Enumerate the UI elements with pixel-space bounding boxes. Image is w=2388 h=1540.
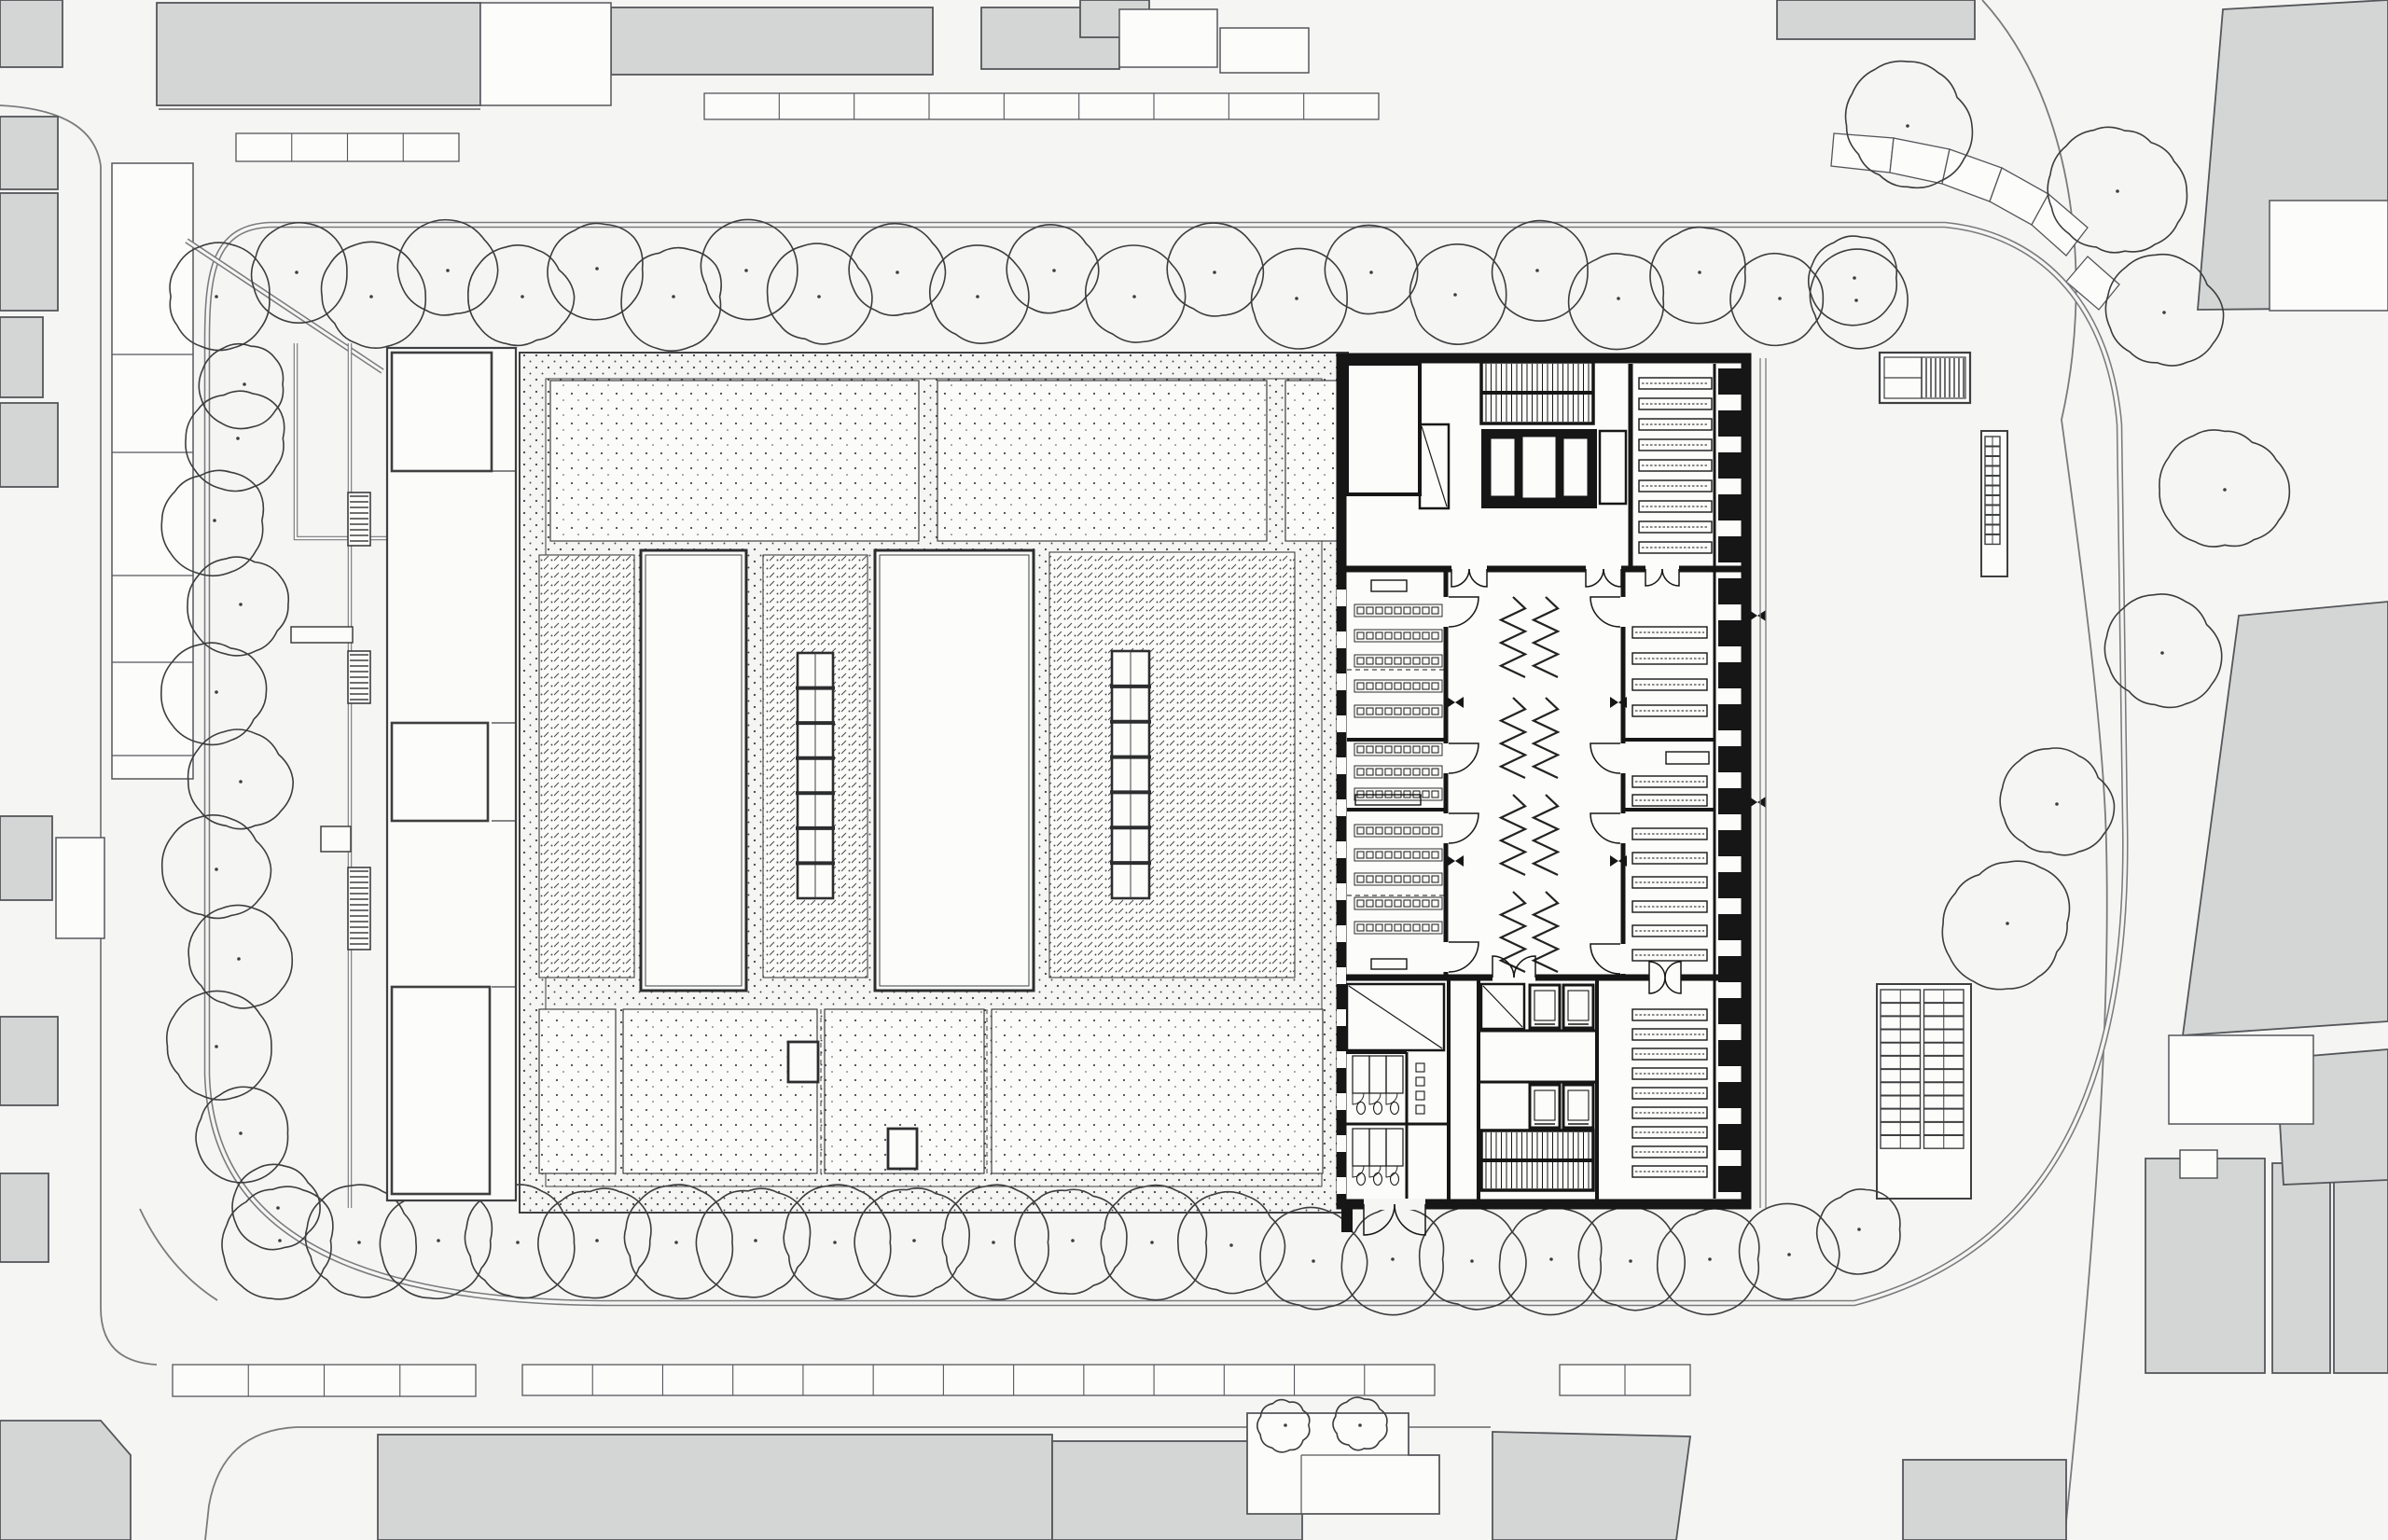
- tree-trunk: [1535, 269, 1539, 272]
- row-houses: [1119, 9, 1217, 67]
- tree-trunk: [2116, 189, 2119, 193]
- context-building: [0, 1017, 58, 1105]
- row-houses: [112, 163, 193, 779]
- core-cell: [1522, 437, 1556, 498]
- context-building: [0, 317, 43, 397]
- tree-trunk: [1213, 271, 1216, 274]
- context-building: [1492, 1432, 1690, 1540]
- facade-window-module: [1718, 1040, 1742, 1066]
- facade-window-gap: [1337, 715, 1346, 732]
- facade-window-module: [1718, 998, 1742, 1024]
- tree-trunk: [1052, 269, 1056, 272]
- parking-row: [522, 1365, 1435, 1395]
- sports-field: [875, 550, 1034, 991]
- facade-window-gap: [1337, 631, 1346, 648]
- facade-window-gap: [1337, 1177, 1346, 1194]
- tree-trunk: [672, 295, 675, 298]
- tree-trunk: [215, 867, 218, 871]
- tree-trunk: [215, 690, 218, 694]
- tree-trunk: [1857, 1228, 1861, 1231]
- tree-trunk: [1617, 297, 1620, 300]
- tree-trunk: [817, 295, 821, 298]
- context-building: [611, 7, 933, 75]
- tree-trunk: [239, 603, 243, 606]
- tree-trunk: [1778, 297, 1782, 300]
- tree-trunk: [833, 1241, 837, 1244]
- school-main-building: [1337, 354, 1767, 1236]
- planting-plot: [623, 1009, 817, 1173]
- context-building: [157, 3, 480, 105]
- row-houses: [480, 3, 611, 105]
- facade-window-gap: [1337, 757, 1346, 774]
- tree-trunk: [1853, 276, 1856, 280]
- tree-trunk: [239, 780, 243, 784]
- tree-trunk: [437, 1239, 440, 1242]
- lawn-plot: [539, 555, 634, 978]
- facade-window-module: [1718, 536, 1742, 562]
- context-building: [0, 1173, 49, 1262]
- facade-window-module: [1718, 788, 1742, 814]
- tree-trunk: [1549, 1257, 1553, 1261]
- row-houses: [2169, 1035, 2313, 1124]
- context-building: [1777, 0, 1975, 39]
- tree-trunk: [215, 1045, 218, 1048]
- facade-window-module: [1718, 872, 1742, 898]
- facade-window-gap: [1337, 590, 1346, 606]
- facade-window-module: [1718, 704, 1742, 730]
- tree-trunk: [1906, 124, 1909, 128]
- facade-window-module: [1718, 662, 1742, 688]
- facade-window-module: [1718, 410, 1742, 437]
- wing-room: [392, 353, 492, 471]
- tree-trunk: [1295, 297, 1298, 300]
- wing-room: [392, 723, 488, 821]
- tree-trunk: [295, 271, 298, 274]
- tree-trunk: [1071, 1239, 1075, 1242]
- core-cell: [1563, 438, 1588, 496]
- facade-window-gap: [1337, 1135, 1346, 1152]
- row-houses: [2180, 1150, 2217, 1178]
- tree-trunk: [674, 1241, 678, 1244]
- tree-trunk: [976, 295, 979, 298]
- tree-trunk: [1854, 298, 1858, 302]
- tree-trunk: [1284, 1423, 1287, 1427]
- tree-trunk: [237, 957, 241, 961]
- tree-trunk: [744, 269, 748, 272]
- tree-trunk: [2160, 651, 2164, 655]
- tree-trunk: [276, 1206, 280, 1210]
- facade-window-module: [1718, 1166, 1742, 1192]
- tree-trunk: [1150, 1241, 1154, 1244]
- play-element: [888, 1129, 917, 1169]
- tree-trunk: [1787, 1253, 1791, 1256]
- planting-plot: [539, 1009, 616, 1173]
- tree-trunk: [895, 271, 899, 274]
- parking-stall: [1831, 133, 1894, 173]
- bench: [348, 867, 370, 950]
- context-building: [0, 117, 58, 189]
- tree-trunk: [595, 1239, 599, 1242]
- facade-window-module: [1718, 1124, 1742, 1150]
- planting-plot: [992, 1009, 1323, 1173]
- tree-trunk: [1229, 1243, 1233, 1247]
- facade-window-module: [1718, 620, 1742, 646]
- facade-window-gap: [1337, 925, 1346, 942]
- facade-window-gap: [1337, 1009, 1346, 1026]
- play-element: [788, 1042, 818, 1082]
- school-left-wing: [387, 348, 516, 1200]
- site-plan-drawing: [0, 0, 2388, 1540]
- tree-trunk: [2223, 488, 2227, 492]
- tree-trunk: [278, 1239, 282, 1242]
- tree-trunk: [357, 1241, 361, 1244]
- tree-trunk: [1470, 1259, 1474, 1263]
- planting-plot: [1285, 381, 1343, 541]
- tree-trunk: [243, 382, 246, 386]
- tree-trunk: [516, 1241, 520, 1244]
- tree-trunk: [1369, 271, 1373, 274]
- facade-window-gap: [1337, 799, 1346, 816]
- tree-trunk: [992, 1241, 995, 1244]
- plan-canvas: [0, 0, 2388, 1540]
- tree-trunk: [1708, 1257, 1712, 1261]
- tree-trunk: [2006, 922, 2009, 925]
- row-houses: [2270, 201, 2388, 311]
- tree-trunk: [2055, 802, 2059, 806]
- facade-window-module: [1718, 494, 1742, 520]
- context-building: [378, 1435, 1052, 1540]
- tree-trunk: [1453, 293, 1457, 297]
- wall-stub: [1341, 1204, 1353, 1232]
- facade-window-module: [1718, 746, 1742, 772]
- row-houses: [1220, 28, 1309, 73]
- tree-trunk: [1629, 1259, 1632, 1263]
- facade-window-module: [1718, 830, 1742, 856]
- tree-trunk: [1698, 271, 1701, 274]
- wing-room: [392, 987, 490, 1194]
- facade-window-gap: [1337, 1093, 1346, 1110]
- lawn-plot: [1049, 552, 1295, 978]
- context-building: [0, 1421, 131, 1540]
- parking-row: [704, 93, 1379, 119]
- facade-window-gap: [1337, 841, 1346, 858]
- site-element: [291, 627, 353, 643]
- school-courtyard: [520, 353, 1348, 1213]
- tree-trunk: [236, 437, 240, 440]
- tree-trunk: [521, 295, 524, 298]
- row-houses: [56, 838, 104, 938]
- tree-trunk: [754, 1239, 757, 1242]
- tree-trunk: [1132, 295, 1136, 298]
- planting-plot: [550, 381, 919, 541]
- context-building: [0, 0, 62, 67]
- context-building: [1903, 1460, 2066, 1540]
- facade-window-gap: [1337, 673, 1346, 690]
- site-element: [321, 826, 351, 852]
- context-building: [2272, 1163, 2330, 1373]
- tree-trunk: [1358, 1423, 1362, 1427]
- sports-field: [641, 550, 746, 991]
- facade-window-module: [1718, 368, 1742, 395]
- tree-trunk: [912, 1239, 916, 1242]
- tree-trunk: [446, 269, 450, 272]
- facade-window-gap: [1337, 1051, 1346, 1068]
- tree-trunk: [213, 519, 216, 522]
- tree-trunk: [215, 295, 218, 298]
- facade-window-module: [1718, 452, 1742, 479]
- context-building: [2145, 1158, 2265, 1373]
- facade-window-module: [1718, 1082, 1742, 1108]
- planting-plot: [937, 381, 1267, 541]
- facade-window-module: [1718, 956, 1742, 982]
- tree-trunk: [239, 1131, 243, 1135]
- tree-trunk: [369, 295, 373, 298]
- context-building: [0, 403, 58, 487]
- facade-window-module: [1718, 914, 1742, 940]
- tree-trunk: [595, 267, 599, 271]
- tree-trunk: [1391, 1257, 1395, 1261]
- context-building: [0, 193, 58, 311]
- tree-trunk: [1312, 1259, 1315, 1263]
- core-cell: [1491, 438, 1515, 496]
- tree-trunk: [2162, 311, 2166, 314]
- facade-window-gap: [1337, 883, 1346, 900]
- facade-window-module: [1718, 578, 1742, 604]
- facade-window-gap: [1337, 967, 1346, 984]
- context-building: [0, 816, 52, 900]
